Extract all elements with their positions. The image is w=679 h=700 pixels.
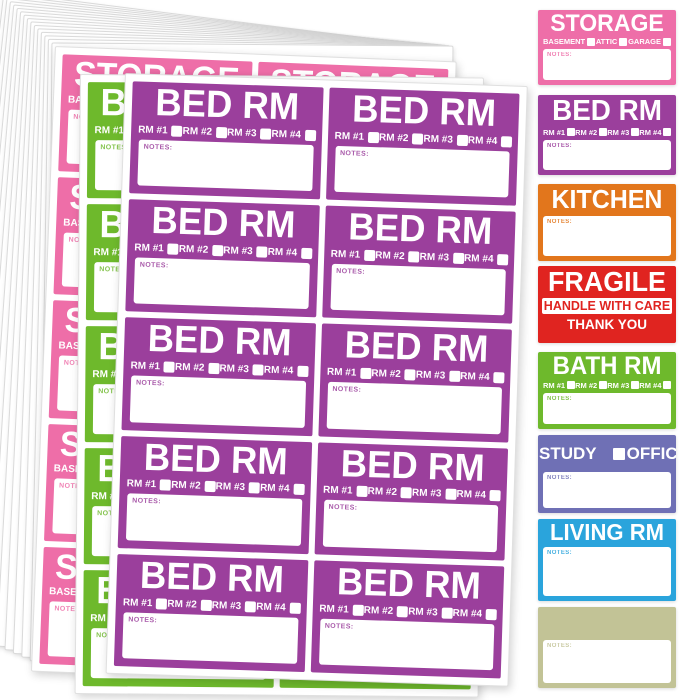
checkbox-row: RM #1RM #2RM #3RM #4	[538, 380, 676, 390]
checkbox-icon	[171, 125, 182, 136]
checkbox-label: RM #4	[452, 607, 482, 619]
checkbox-item: GARAGE	[628, 37, 671, 46]
checkbox-item: RM #2	[575, 381, 607, 390]
checkbox-item: RM #4	[456, 489, 501, 501]
checkbox-icon	[493, 372, 504, 383]
checkbox-label: RM #2	[379, 132, 409, 144]
notes-box: NOTES:	[122, 612, 298, 664]
checkbox-label: GARAGE	[628, 37, 661, 46]
checkbox-icon	[457, 135, 468, 146]
bed-rm-label: BED RMRM #1RM #2RM #3RM #4NOTES:	[314, 442, 508, 560]
checkbox-icon	[253, 364, 264, 375]
label-title: STORAGE	[541, 12, 673, 36]
moving-labels-product-photo: STORAGEBASEMENTATTICGARAGENOTES:STORAGEB…	[0, 0, 679, 700]
label-title: BED RM	[131, 202, 315, 247]
checkbox-item: RM #1	[327, 367, 372, 379]
checkbox-icon	[453, 253, 464, 264]
checkbox-icon	[567, 381, 575, 389]
bed-rm-label: BED RMRM #1RM #2RM #3RM #4NOTES:	[318, 324, 512, 442]
label-title: BED RM	[541, 97, 673, 127]
checkbox-item: RM #2	[364, 605, 409, 617]
bed-rm-sheet-grid: BED RMRM #1RM #2RM #3RM #4NOTES:BED RMRM…	[114, 81, 520, 678]
checkbox-item: RM #4	[260, 483, 305, 495]
option-item: OFFICE	[613, 444, 676, 464]
bed-rm-label: BED RMRM #1RM #2RM #3RM #4NOTES:	[114, 554, 308, 672]
checkbox-icon	[663, 381, 671, 389]
checkbox-label: RM #3	[408, 606, 438, 618]
checkbox-icon	[356, 486, 367, 497]
notes-caption: NOTES:	[128, 616, 293, 628]
blank-label: NOTES:	[538, 607, 676, 688]
checkbox-icon	[501, 136, 512, 147]
checkbox-item: RM #2	[182, 126, 227, 138]
checkbox-icon	[599, 128, 607, 136]
checkbox-icon	[587, 38, 595, 46]
label-title: BED RM	[324, 326, 508, 371]
checkbox-label: RM #2	[367, 486, 397, 498]
notes-caption: NOTES:	[547, 52, 667, 58]
checkbox-item: RM #1	[323, 485, 368, 497]
checkbox-label: RM #1	[334, 131, 364, 143]
checkbox-item: RM #4	[464, 253, 509, 265]
checkbox-item: RM #3	[408, 606, 453, 618]
option-item: STUDY	[538, 444, 597, 464]
checkbox-icon	[301, 248, 312, 259]
checkbox-icon	[353, 604, 364, 615]
checkbox-icon	[364, 250, 375, 261]
checkbox-label: RM #1	[130, 360, 160, 372]
checkbox-icon	[204, 481, 215, 492]
notes-caption: NOTES:	[547, 475, 667, 481]
checkbox-item: RM #4	[639, 128, 671, 137]
checkbox-label: RM #3	[215, 481, 245, 493]
notes-box: NOTES:	[134, 257, 310, 309]
checkbox-icon	[289, 602, 300, 613]
notes-caption: NOTES:	[132, 498, 297, 510]
checkbox-item: RM #3	[607, 128, 639, 137]
checkbox-icon	[160, 480, 171, 491]
checkbox-label: RM #3	[412, 488, 442, 500]
bed-rm-label-sheet: BED RMRM #1RM #2RM #3RM #4NOTES:BED RMRM…	[106, 73, 528, 687]
notes-box: NOTES:	[319, 618, 495, 670]
checkbox-icon	[631, 381, 639, 389]
checkbox-item: RM #2	[171, 480, 216, 492]
notes-caption: NOTES:	[547, 643, 667, 649]
checkbox-icon	[297, 366, 308, 377]
notes-box: NOTES:	[543, 140, 671, 170]
checkbox-item: RM #3	[412, 488, 457, 500]
label-title: BATH RM	[541, 354, 673, 380]
label-title: LIVING RM	[541, 521, 673, 544]
notes-caption: NOTES:	[328, 504, 493, 516]
option-label: STUDY	[539, 444, 597, 464]
checkbox-icon	[599, 381, 607, 389]
checkbox-icon	[168, 243, 179, 254]
living-rm-label: LIVING RMNOTES:	[538, 519, 676, 601]
label-title: KITCHEN	[541, 186, 673, 213]
thank-you-text: THANK YOU	[538, 315, 676, 335]
checkbox-label: RM #4	[264, 365, 294, 377]
checkbox-icon	[490, 490, 501, 501]
kitchen-label: KITCHENNOTES:	[538, 184, 676, 261]
checkbox-icon	[408, 251, 419, 262]
label-title: FRAGILE	[541, 268, 673, 297]
checkbox-label: RM #1	[127, 479, 157, 491]
checkbox-label: RM #1	[94, 125, 124, 136]
checkbox-item: RM #4	[639, 381, 671, 390]
bed-rm-label: BED RMRM #1RM #2RM #3RM #4NOTES:	[538, 95, 676, 175]
label-title: BED RM	[316, 562, 500, 607]
notes-box: NOTES:	[126, 494, 302, 546]
checkbox-row: RM #1RM #2RM #3RM #4	[538, 127, 676, 137]
checkbox-item: RM #3	[423, 133, 468, 145]
notes-caption: NOTES:	[336, 268, 501, 280]
checkbox-item: RM #2	[371, 368, 416, 380]
checkbox-item: RM #2	[179, 244, 224, 256]
checkbox-label: RM #4	[260, 483, 290, 495]
checkbox-icon	[368, 132, 379, 143]
checkbox-item: RM #1	[543, 128, 575, 137]
checkbox-label: RM #3	[227, 127, 257, 139]
checkbox-item: RM #3	[416, 370, 461, 382]
notes-box: NOTES:	[130, 375, 306, 427]
checkbox-label: RM #2	[171, 480, 201, 492]
checkbox-label: ATTIC	[596, 37, 618, 46]
checkbox-label: RM #1	[138, 124, 168, 136]
checkbox-label: RM #2	[575, 381, 597, 390]
notes-box: NOTES:	[543, 393, 671, 425]
checkbox-label: RM #3	[419, 252, 449, 264]
checkbox-label: BASEMENT	[543, 37, 585, 46]
checkbox-label: RM #1	[543, 381, 565, 390]
blank-header	[538, 607, 676, 637]
notes-caption: NOTES:	[136, 380, 301, 392]
checkbox-icon	[445, 489, 456, 500]
checkbox-icon	[497, 254, 508, 265]
storage-label: STORAGEBASEMENTATTICGARAGENOTES:	[538, 10, 676, 85]
bed-rm-label: BED RMRM #1RM #2RM #3RM #4NOTES:	[125, 199, 319, 317]
option-row: STUDYOFFICE	[538, 435, 676, 469]
label-title: BED RM	[128, 320, 312, 365]
label-title: BED RM	[124, 438, 308, 483]
checkbox-icon	[245, 601, 256, 612]
checkbox-label: RM #1	[327, 367, 357, 379]
checkbox-label: RM #2	[364, 605, 394, 617]
checkbox-icon	[156, 598, 167, 609]
checkbox-label: RM #1	[134, 242, 164, 254]
checkbox-label: RM #4	[271, 129, 301, 141]
notes-caption: NOTES:	[144, 143, 309, 155]
checkbox-label: RM #2	[375, 250, 405, 262]
checkbox-item: RM #1	[543, 381, 575, 390]
label-title: BED RM	[120, 556, 304, 601]
checkbox-item: BASEMENT	[543, 37, 595, 46]
checkbox-label: RM #2	[175, 362, 205, 374]
checkbox-icon	[401, 487, 412, 498]
checkbox-label: RM #4	[639, 381, 661, 390]
label-title: BED RM	[320, 444, 504, 489]
checkbox-item: RM #2	[379, 132, 424, 144]
notes-box: NOTES:	[543, 547, 671, 596]
checkbox-label: RM #4	[267, 247, 297, 259]
checkbox-item: RM #3	[219, 363, 264, 375]
checkbox-icon	[567, 128, 575, 136]
checkbox-item: RM #4	[264, 365, 309, 377]
checkbox-label: RM #4	[468, 135, 498, 147]
label-title: BED RM	[328, 208, 512, 253]
bed-rm-label: BED RMRM #1RM #2RM #3RM #4NOTES:	[129, 81, 323, 199]
checkbox-label: RM #4	[464, 253, 494, 265]
checkbox-item: RM #2	[575, 128, 607, 137]
fragile-label: FRAGILEHANDLE WITH CARETHANK YOU	[538, 266, 676, 343]
checkbox-label: RM #1	[123, 597, 153, 609]
checkbox-icon	[201, 599, 212, 610]
checkbox-item: RM #2	[167, 598, 212, 610]
bed-rm-label: BED RMRM #1RM #2RM #3RM #4NOTES:	[322, 206, 516, 324]
checkbox-item: RM #3	[215, 481, 260, 493]
notes-box: NOTES:	[543, 216, 671, 256]
checkbox-item: RM #1	[334, 131, 379, 143]
checkbox-item: RM #4	[468, 135, 513, 147]
notes-caption: NOTES:	[547, 143, 667, 149]
checkbox-item: RM #4	[271, 129, 316, 141]
checkbox-icon	[412, 133, 423, 144]
checkbox-label: RM #4	[639, 128, 661, 137]
handle-with-care-text: HANDLE WITH CARE	[542, 298, 672, 314]
notes-box: NOTES:	[137, 139, 313, 191]
label-title: BED RM	[332, 90, 516, 135]
checkbox-item: ATTIC	[596, 37, 628, 46]
checkbox-item: RM #1	[127, 479, 172, 491]
notes-caption: NOTES:	[140, 262, 305, 274]
checkbox-icon	[631, 128, 639, 136]
checkbox-item: RM #4	[267, 247, 312, 259]
checkbox-icon	[441, 607, 452, 618]
checkbox-label: RM #3	[423, 133, 453, 145]
checkbox-icon	[164, 362, 175, 373]
checkbox-item: RM #1	[134, 242, 179, 254]
checkbox-label: RM #3	[607, 381, 629, 390]
checkbox-item: RM #1	[331, 249, 376, 261]
checkbox-label: RM #2	[575, 128, 597, 137]
checkbox-item: RM #4	[452, 607, 497, 619]
checkbox-label: RM #3	[607, 128, 629, 137]
checkbox-icon	[619, 38, 627, 46]
notes-caption: NOTES:	[340, 150, 505, 162]
checkbox-icon	[360, 368, 371, 379]
notes-box: NOTES:	[322, 500, 498, 552]
checkbox-label: RM #2	[167, 598, 197, 610]
checkbox-icon	[663, 38, 671, 46]
bath-rm-label: BATH RMRM #1RM #2RM #3RM #4NOTES:	[538, 352, 676, 429]
checkbox-label: RM #1	[543, 128, 565, 137]
bed-rm-label: BED RMRM #1RM #2RM #3RM #4NOTES:	[310, 560, 504, 678]
checkbox-icon	[216, 127, 227, 138]
notes-box: NOTES:	[334, 146, 510, 198]
checkbox-item: RM #4	[460, 371, 505, 383]
checkbox-item: RM #3	[223, 245, 268, 257]
checkbox-label: RM #2	[371, 368, 401, 380]
checkbox-icon	[405, 369, 416, 380]
checkbox-icon	[256, 246, 267, 257]
checkbox-icon	[208, 363, 219, 374]
study-office-label: STUDYOFFICENOTES:	[538, 435, 676, 513]
notes-caption: NOTES:	[332, 386, 497, 398]
checkbox-icon	[260, 128, 271, 139]
checkbox-item: RM #2	[367, 486, 412, 498]
label-title: BED RM	[135, 83, 319, 128]
notes-box: NOTES:	[330, 264, 506, 316]
checkbox-label: RM #1	[323, 485, 353, 497]
checkbox-icon	[397, 606, 408, 617]
bed-rm-label: BED RMRM #1RM #2RM #3RM #4NOTES:	[326, 88, 520, 206]
checkbox-label: RM #3	[223, 245, 253, 257]
checkbox-item: RM #2	[175, 362, 220, 374]
checkbox-icon	[663, 128, 671, 136]
checkbox-icon	[305, 130, 316, 141]
notes-box: NOTES:	[543, 640, 671, 683]
notes-box: NOTES:	[543, 472, 671, 508]
checkbox-icon	[293, 484, 304, 495]
checkbox-label: RM #3	[416, 370, 446, 382]
bed-rm-label: BED RMRM #1RM #2RM #3RM #4NOTES:	[121, 318, 315, 436]
checkbox-item: RM #3	[607, 381, 639, 390]
notes-box: NOTES:	[326, 382, 502, 434]
checkbox-label: RM #4	[456, 489, 486, 501]
notes-caption: NOTES:	[547, 219, 667, 225]
checkbox-label: RM #2	[182, 126, 212, 138]
checkbox-item: RM #1	[130, 360, 175, 372]
checkbox-icon	[249, 483, 260, 494]
checkbox-icon	[212, 245, 223, 256]
checkbox-row: BASEMENTATTICGARAGE	[538, 36, 676, 46]
checkbox-label: RM #3	[212, 600, 242, 612]
checkbox-item: RM #2	[375, 250, 420, 262]
bed-rm-label: BED RMRM #1RM #2RM #3RM #4NOTES:	[118, 436, 312, 554]
checkbox-icon	[613, 448, 625, 460]
notes-caption: NOTES:	[547, 550, 667, 556]
checkbox-item: RM #3	[419, 252, 464, 264]
checkbox-item: RM #3	[227, 127, 272, 139]
checkbox-icon	[486, 608, 497, 619]
checkbox-item: RM #1	[138, 124, 183, 136]
checkbox-item: RM #1	[319, 603, 364, 615]
notes-caption: NOTES:	[547, 396, 667, 402]
checkbox-label: RM #3	[219, 363, 249, 375]
checkbox-icon	[449, 371, 460, 382]
checkbox-item: RM #4	[256, 601, 301, 613]
checkbox-item: RM #3	[212, 600, 257, 612]
checkbox-label: RM #1	[331, 249, 361, 261]
checkbox-label: RM #4	[460, 371, 490, 383]
checkbox-label: RM #2	[179, 244, 209, 256]
option-label: OFFICE	[627, 444, 676, 464]
notes-caption: NOTES:	[325, 622, 490, 634]
checkbox-label: RM #4	[256, 601, 286, 613]
checkbox-item: RM #1	[123, 597, 168, 609]
notes-box: NOTES:	[543, 49, 671, 80]
checkbox-label: RM #1	[319, 603, 349, 615]
